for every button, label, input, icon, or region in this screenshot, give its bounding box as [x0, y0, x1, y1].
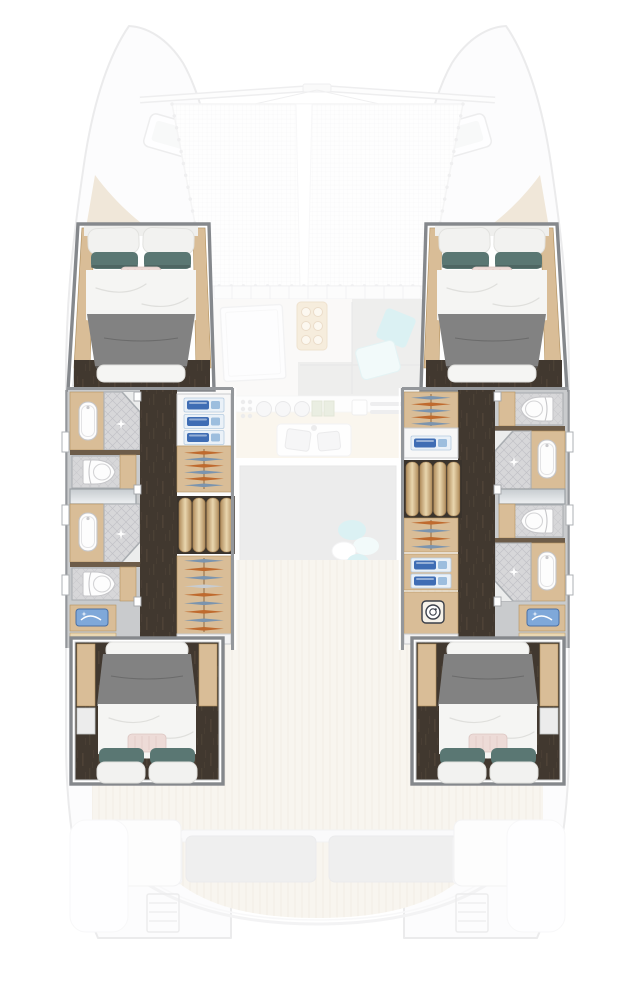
catamaran-floor-plan: [0, 0, 635, 1000]
saloon-table: [220, 304, 286, 381]
port-hull-interior: [62, 224, 236, 784]
starboard-bathrooms: [495, 390, 567, 648]
companionway-stairs: [177, 496, 235, 554]
glass-partition: [70, 489, 136, 504]
galley: [236, 396, 420, 458]
starboard-wardrobe: [404, 392, 462, 644]
vanity-basin: [519, 605, 565, 631]
bottle-rack: [297, 302, 327, 350]
port-bathrooms: [68, 390, 140, 648]
galley-sink-icon: [277, 424, 351, 456]
saloon: [213, 299, 422, 396]
starboard-aft-cabin: [412, 638, 564, 784]
port-aft-cabin: [71, 638, 223, 784]
towel-shelf: [411, 558, 451, 572]
saloon-rug: [240, 466, 396, 570]
trampoline-net: [172, 104, 463, 286]
starboard-hull-interior: [400, 224, 574, 784]
towel-shelf: [184, 398, 224, 412]
port-wardrobe: [177, 394, 235, 644]
glass-partition: [499, 489, 565, 504]
towel-shelf: [184, 415, 224, 429]
washing-machine-icon: [422, 601, 444, 623]
towel-shelf: [184, 431, 224, 445]
towel-shelf: [411, 574, 451, 588]
starboard-forward-cabin: [421, 224, 567, 390]
towel-shelf: [411, 436, 451, 450]
galley-hatch: [352, 400, 367, 415]
windshield: [214, 286, 421, 299]
port-forward-cabin: [68, 224, 214, 390]
vanity-basin: [70, 605, 116, 631]
companionway-stairs: [404, 460, 462, 518]
port-corridor: [140, 390, 177, 648]
starboard-corridor: [458, 390, 495, 648]
